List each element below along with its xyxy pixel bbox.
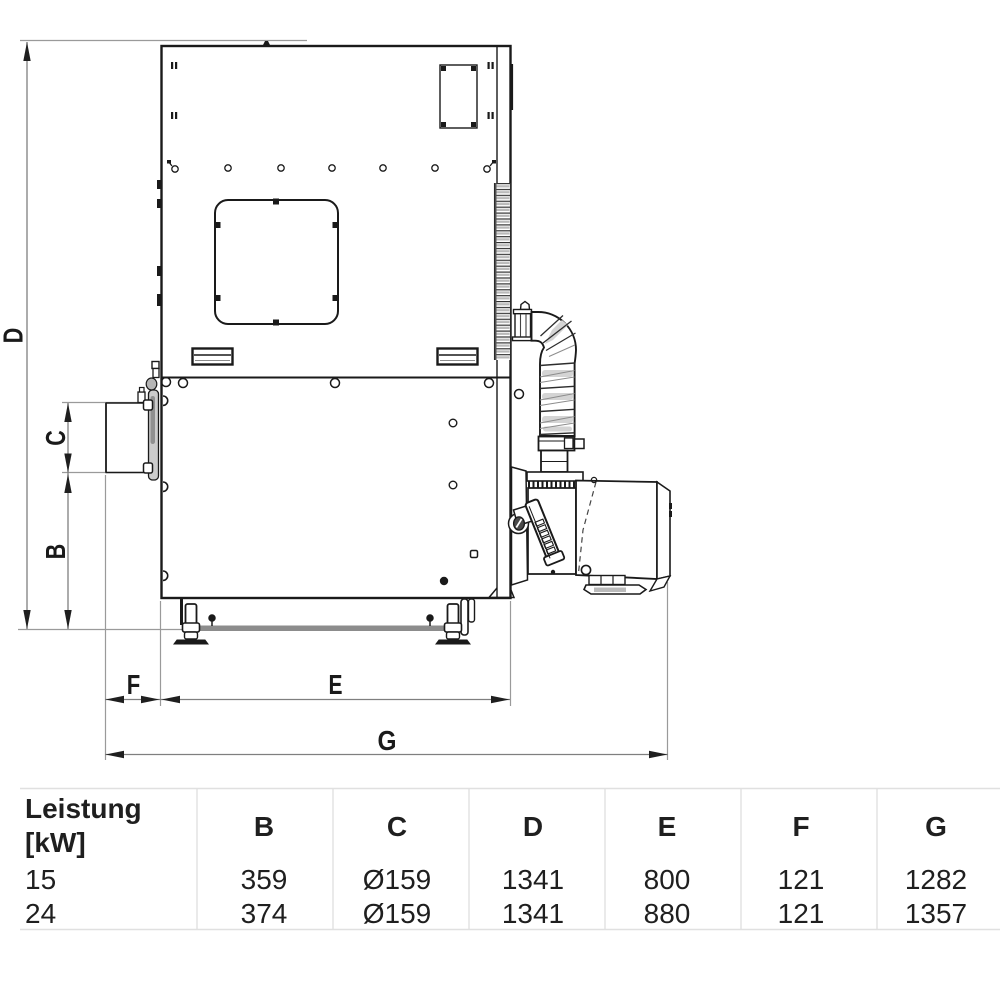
svg-text:24: 24 [25, 898, 56, 929]
svg-text:Ø159: Ø159 [363, 898, 432, 929]
svg-text:374: 374 [241, 898, 288, 929]
svg-text:D: D [0, 328, 29, 344]
svg-text:[kW]: [kW] [25, 827, 86, 858]
svg-text:B: B [40, 544, 71, 560]
svg-text:121: 121 [778, 898, 825, 929]
svg-text:15: 15 [25, 864, 56, 895]
svg-text:1357: 1357 [905, 898, 967, 929]
svg-text:1282: 1282 [905, 864, 967, 895]
svg-text:G: G [925, 811, 947, 842]
svg-text:C: C [40, 430, 71, 446]
svg-text:G: G [378, 725, 397, 756]
svg-text:1341: 1341 [502, 898, 564, 929]
svg-text:F: F [127, 669, 141, 700]
svg-text:B: B [254, 811, 274, 842]
svg-text:359: 359 [241, 864, 288, 895]
svg-text:Ø159: Ø159 [363, 864, 432, 895]
svg-text:880: 880 [644, 898, 691, 929]
svg-text:E: E [658, 811, 677, 842]
svg-text:121: 121 [778, 864, 825, 895]
svg-text:1341: 1341 [502, 864, 564, 895]
svg-text:Leistung: Leistung [25, 793, 142, 824]
svg-text:D: D [523, 811, 543, 842]
svg-text:E: E [329, 669, 343, 700]
svg-text:F: F [792, 811, 809, 842]
svg-text:800: 800 [644, 864, 691, 895]
svg-text:C: C [387, 811, 407, 842]
